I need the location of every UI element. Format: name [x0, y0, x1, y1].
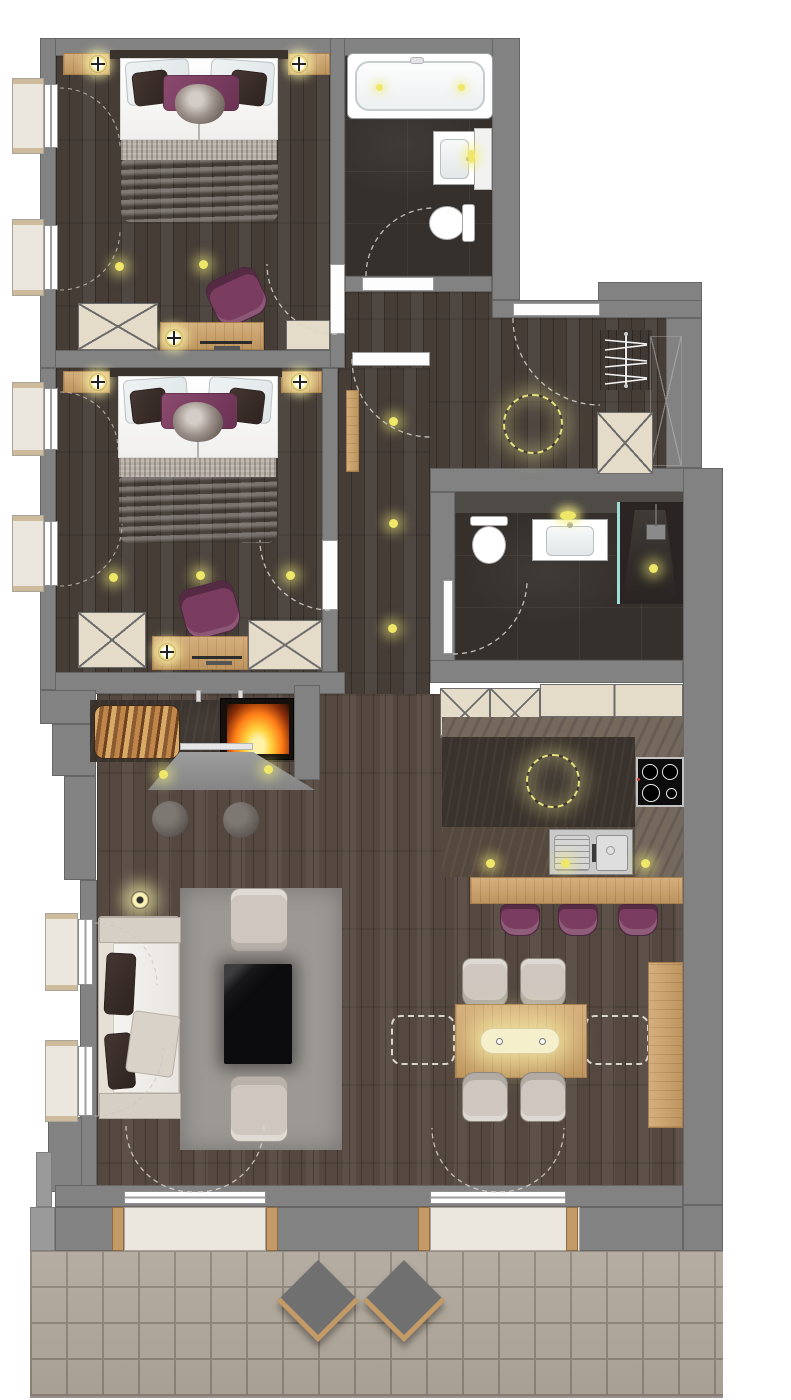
floor-plan: [0, 0, 791, 1400]
door-swing-arcs: [0, 0, 791, 1400]
